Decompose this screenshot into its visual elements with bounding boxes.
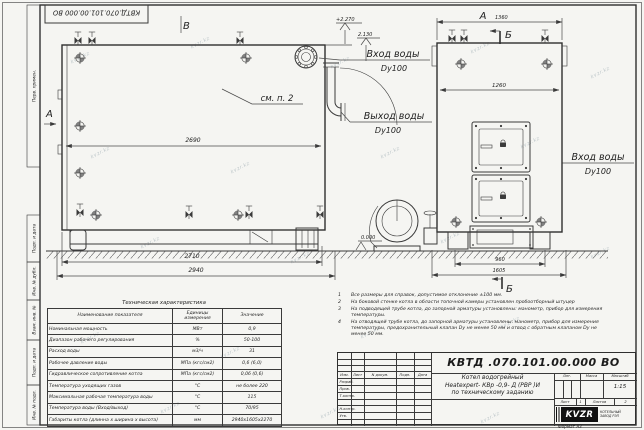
target-mark-icon <box>541 58 553 70</box>
note-item: 1Все размеры для справок, допустимое отк… <box>335 293 635 299</box>
see-note-callout: см. п. 2 <box>222 89 303 104</box>
table-row: Габариты котла (длинна х ширина х высота… <box>48 415 282 426</box>
svg-text:2940: 2940 <box>188 267 203 274</box>
view-label-b: В <box>183 21 190 32</box>
margin-label-podp-data-1: Подп. и дата <box>32 224 38 254</box>
format-label: Формат А3 <box>558 424 582 429</box>
kvzr-logo: KVZR КОТЕЛЬНЫЙ ЗАВОД РЭП <box>556 407 621 422</box>
table-row: Максимальная рабочая температура воды°С1… <box>48 392 282 403</box>
inlet-front-dn: Dy100 <box>585 167 611 176</box>
pipe-labels: Вход воды Dy100 Выход воды Dy100 Вход во… <box>319 49 634 176</box>
sig-prov: Пров. <box>340 387 350 391</box>
target-mark-icon <box>455 58 467 70</box>
blower-fan <box>370 200 420 251</box>
target-mark-icon <box>535 216 547 228</box>
col-izm: Изм. <box>338 373 351 377</box>
svg-text:2690: 2690 <box>185 137 200 144</box>
drain-valve-icon <box>77 204 84 217</box>
target-mark-icon <box>232 209 244 221</box>
col-ndoc: N докум. <box>364 373 396 377</box>
valve-icon <box>449 30 456 43</box>
furnace-door-bottom <box>472 175 530 222</box>
drain-valve-icon <box>317 206 324 219</box>
view-label-a-front: А <box>479 11 487 22</box>
side-dimensions: 2690 2710 2940 <box>57 137 335 280</box>
table-row: Диапазон рабочего регулирования%50-100 <box>48 335 282 346</box>
margin-label-podp-data-2: Подп. и дата <box>32 348 38 378</box>
title-block: КВТД .070.101.00.000 ВО Котел водогрейны… <box>337 352 636 425</box>
svg-text:см. п. 2: см. п. 2 <box>261 94 294 104</box>
svg-text:1260: 1260 <box>492 83 506 89</box>
logo-brand: KVZR <box>561 407 598 422</box>
col-podp: Подп. <box>396 373 414 377</box>
note-item: 2На боковой стенке котла в области топоч… <box>335 300 635 306</box>
target-mark-icon <box>74 120 86 132</box>
note-item: 4На отводящей трубе котла, до запорной а… <box>335 320 635 339</box>
target-mark-icon <box>90 209 102 221</box>
sheets-label: Листов <box>585 400 614 404</box>
inlet-front-label: Вход воды <box>571 152 625 163</box>
elevation-pipe: 2.130 <box>358 32 372 38</box>
sig-nkontr: Н.контр. <box>340 407 356 411</box>
note-item: 3На подводящей трубе котла, до запорной … <box>335 307 635 320</box>
svg-text:1605: 1605 <box>493 268 506 274</box>
target-mark-icon <box>240 52 252 64</box>
valve-icon <box>237 32 244 45</box>
inlet-flange <box>295 46 317 68</box>
target-mark-icon <box>450 216 462 228</box>
sheet-number: 1 <box>576 400 585 404</box>
table-row: Температура уходящих газов°Сне более 220 <box>48 380 282 391</box>
inlet-side-dn: Dy100 <box>381 64 407 73</box>
table-row: Номинальная мощностьМВт0,9 <box>48 324 282 335</box>
margin-label-inv-podl: Инв. № подл. <box>32 390 38 420</box>
outlet-dn: Dy100 <box>375 126 401 135</box>
outlet-label: Выход воды <box>364 111 425 122</box>
furnace-door-top <box>472 122 530 172</box>
valve-icon <box>89 32 96 45</box>
logo-company: КОТЕЛЬНЫЙ ЗАВОД РЭП <box>600 411 621 419</box>
margin-label-perv-primen: Перв. примен. <box>32 70 38 102</box>
product-title: Котел водогрейный Heatexpert- КВр -0,9- … <box>433 375 552 398</box>
sheet-label: Лист <box>554 400 576 404</box>
sig-razrab: Разраб. <box>340 380 354 384</box>
base-frame <box>70 228 318 250</box>
valve-icon <box>461 30 468 43</box>
drain-valve-icon <box>246 206 253 219</box>
svg-text:1360: 1360 <box>495 15 508 21</box>
massa-label: Масса <box>580 374 603 378</box>
tech-characteristics: Техническая характеристика Наименование … <box>47 300 281 427</box>
tech-table: Наименование показателя Единицы измерени… <box>47 308 282 427</box>
drain-valve-icon <box>186 206 193 219</box>
tech-table-title: Техническая характеристика <box>47 300 281 306</box>
inlet-side-label: Вход воды <box>366 49 420 60</box>
table-row: Расход водым3/ч31 <box>48 346 282 357</box>
target-mark-icon <box>74 167 86 179</box>
section-label-b-top: Б <box>505 30 512 41</box>
ash-box <box>470 226 533 248</box>
drawing-sheet: kvzr.kz kvzr.kz kvzr.kz kvzr.kz kvzr.kz … <box>0 0 644 430</box>
svg-text:960: 960 <box>495 257 505 263</box>
flipped-doc-number-stamp: КВТД.070.101.00.000 ВО <box>52 9 140 17</box>
scale-value: 1:15 <box>603 385 637 389</box>
padlock-icon <box>500 140 506 147</box>
elevation-top: +2.270 <box>336 17 355 23</box>
lit-label: Лит. <box>554 374 580 378</box>
boiler-side-view: В А см. п. 2 2690 2710 2940 <box>44 16 397 280</box>
elevation-zero: 0.000 <box>361 235 375 241</box>
doc-number: КВТД .070.101.00.000 ВО <box>431 356 636 369</box>
sig-utv: Утв. <box>340 414 348 418</box>
ground-line <box>46 251 608 259</box>
col-list: Лист <box>351 373 364 377</box>
target-mark-icon <box>74 52 86 64</box>
valve-icon <box>75 32 82 45</box>
valve-icon <box>542 30 549 43</box>
col-data: Дата <box>414 373 431 377</box>
sig-tkontr: Т.контр. <box>340 394 356 398</box>
burner-valve <box>424 211 437 244</box>
table-row: Рабочее давление водыМПа (кгс/см2)0,6 (6… <box>48 358 282 369</box>
sheets-number: 2 <box>614 400 637 404</box>
tech-table-header: Наименование показателя Единицы измерени… <box>48 309 282 324</box>
svg-text:2710: 2710 <box>184 253 199 260</box>
notes-list: 1Все размеры для справок, допустимое отк… <box>335 293 635 339</box>
margin-label-inv-dubl: Инв. № дубл. <box>32 266 38 295</box>
padlock-icon <box>500 192 506 199</box>
table-row: Гидравлическое сопротивление котлаМПа (к… <box>48 369 282 380</box>
table-row: Температура воды (Вход/выход)°С70/95 <box>48 403 282 414</box>
margin-label-vzam-inv: Взам. инв. № <box>32 305 38 335</box>
scale-label: Масштаб <box>603 374 637 378</box>
view-label-a-side: А <box>45 109 53 120</box>
